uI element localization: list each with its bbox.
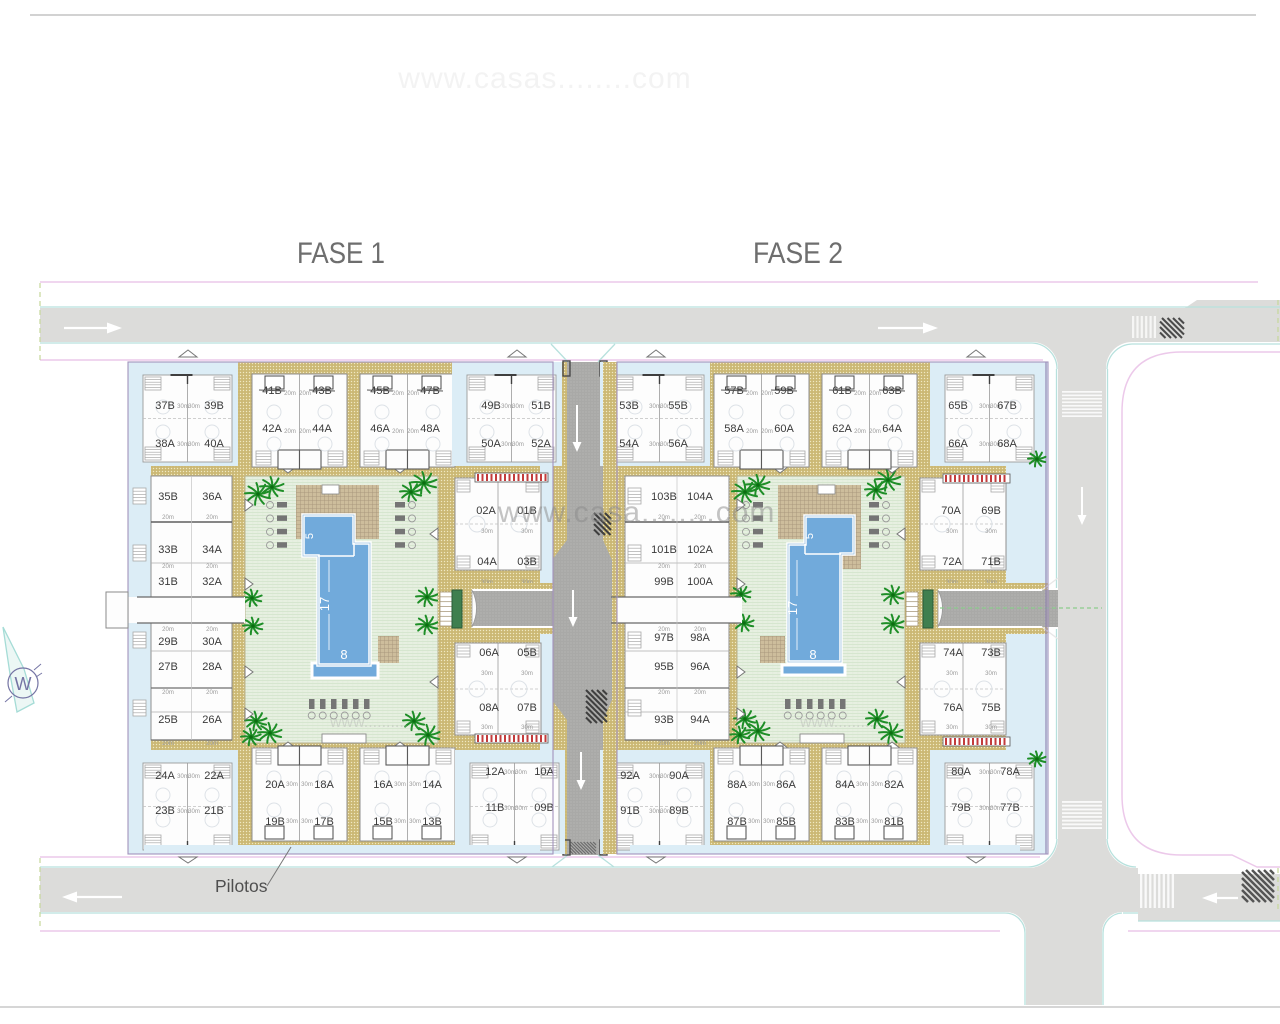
svg-text:77B: 77B [1000,802,1020,814]
svg-text:30m: 30m [649,809,661,815]
svg-text:21B: 21B [204,805,224,817]
svg-text:66A: 66A [948,438,968,450]
svg-text:100A: 100A [687,576,713,588]
svg-text:20m: 20m [299,429,311,435]
svg-text:03B: 03B [517,556,537,568]
svg-text:30m: 30m [512,442,524,448]
svg-text:30m: 30m [985,529,997,535]
svg-text:31B: 31B [158,576,178,588]
svg-text:90A: 90A [669,770,689,782]
svg-text:30m: 30m [409,782,421,788]
svg-text:30m: 30m [990,442,1002,448]
svg-text:8: 8 [809,647,816,662]
svg-text:17: 17 [785,601,800,615]
svg-text:96A: 96A [690,661,710,673]
svg-text:30m: 30m [649,442,661,448]
svg-text:20m: 20m [206,690,218,696]
svg-text:72A: 72A [942,556,962,568]
svg-text:8: 8 [340,647,347,662]
svg-text:20m: 20m [854,429,866,435]
svg-text:20m: 20m [206,515,218,521]
svg-text:13B: 13B [422,816,442,828]
svg-text:20m: 20m [284,429,296,435]
svg-text:05B: 05B [517,647,537,659]
svg-text:www..........: www.......... [799,714,878,731]
svg-text:17: 17 [317,597,332,611]
svg-text:20m: 20m [407,429,419,435]
svg-text:14A: 14A [422,779,442,791]
svg-text:20m: 20m [694,564,706,570]
svg-text:W: W [15,674,32,694]
svg-text:20m: 20m [407,391,419,397]
svg-text:30m: 30m [177,404,189,410]
svg-text:30m: 30m [748,782,760,788]
svg-text:20m: 20m [761,391,773,397]
svg-text:44A: 44A [312,423,332,435]
svg-text:98A: 98A [690,632,710,644]
svg-text:30m: 30m [660,774,672,780]
svg-text:12A: 12A [485,766,505,778]
svg-text:74A: 74A [943,647,963,659]
svg-text:30m: 30m [501,404,513,410]
svg-text:20m: 20m [694,690,706,696]
svg-text:62A: 62A [832,423,852,435]
svg-text:30A: 30A [202,636,222,648]
svg-text:60A: 60A [774,423,794,435]
svg-text:30m: 30m [979,442,991,448]
svg-text:34A: 34A [202,544,222,556]
svg-text:30m: 30m [871,782,883,788]
svg-text:5: 5 [804,533,816,539]
svg-text:32A: 32A [202,576,222,588]
svg-text:30m: 30m [763,782,775,788]
svg-text:30m: 30m [521,671,533,677]
svg-text:69B: 69B [981,505,1001,517]
svg-text:5: 5 [304,533,316,539]
svg-text:83B: 83B [835,816,855,828]
svg-text:30m: 30m [409,819,421,825]
svg-text:30m: 30m [301,782,313,788]
svg-text:75B: 75B [981,702,1001,714]
svg-text:30m: 30m [649,404,661,410]
svg-text:30m: 30m [515,770,527,776]
svg-text:30m: 30m [990,806,1002,812]
svg-text:85B: 85B [776,816,796,828]
svg-text:73B: 73B [981,647,1001,659]
svg-text:79B: 79B [951,802,971,814]
svg-text:25B: 25B [158,714,178,726]
svg-text:www.casa........com: www.casa........com [497,496,775,529]
svg-text:FASE 2: FASE 2 [753,237,843,270]
svg-text:76A: 76A [943,702,963,714]
svg-text:89B: 89B [669,805,689,817]
svg-text:20m: 20m [746,429,758,435]
svg-text:30m: 30m [990,770,1002,776]
svg-text:30m: 30m [979,806,991,812]
svg-text:20m: 20m [869,429,881,435]
svg-text:29B: 29B [158,636,178,648]
svg-text:102A: 102A [687,544,713,556]
svg-text:09B: 09B [534,802,554,814]
svg-text:30m: 30m [177,774,189,780]
svg-text:65B: 65B [948,400,968,412]
svg-text:91B: 91B [620,805,640,817]
svg-text:99B: 99B [654,576,674,588]
svg-text:20m: 20m [299,391,311,397]
svg-text:26A: 26A [202,714,222,726]
svg-text:30m: 30m [188,809,200,815]
svg-text:30m: 30m [660,809,672,815]
svg-text:20A: 20A [265,779,285,791]
svg-text:48A: 48A [420,423,440,435]
svg-text:30m: 30m [985,725,997,731]
svg-text:30m: 30m [301,819,313,825]
svg-text:30m: 30m [177,809,189,815]
svg-text:30m: 30m [660,442,672,448]
svg-text:19B: 19B [265,816,285,828]
svg-text:30m: 30m [871,819,883,825]
svg-text:20m: 20m [694,627,706,633]
svg-text:30m: 30m [188,774,200,780]
svg-text:10A: 10A [534,766,554,778]
svg-text:36A: 36A [202,491,222,503]
svg-text:30m: 30m [481,529,493,535]
svg-text:46A: 46A [370,423,390,435]
svg-text:07B: 07B [517,702,537,714]
svg-text:20m: 20m [658,564,670,570]
svg-text:30m: 30m [979,404,991,410]
svg-text:30m: 30m [286,819,298,825]
svg-text:23B: 23B [155,805,175,817]
svg-text:20m: 20m [206,741,218,747]
svg-text:37B: 37B [155,400,175,412]
svg-text:81B: 81B [884,816,904,828]
svg-text:30m: 30m [985,671,997,677]
svg-text:30m: 30m [763,819,775,825]
svg-text:20m: 20m [854,391,866,397]
svg-text:38A: 38A [155,438,175,450]
svg-text:52A: 52A [531,438,551,450]
svg-text:28A: 28A [202,661,222,673]
svg-text:20m: 20m [746,391,758,397]
svg-text:30m: 30m [856,819,868,825]
svg-text:30m: 30m [979,770,991,776]
svg-text:30m: 30m [512,404,524,410]
svg-text:20m: 20m [869,391,881,397]
svg-text:50A: 50A [481,438,501,450]
svg-text:16A: 16A [373,779,393,791]
svg-text:20m: 20m [162,515,174,521]
svg-text:30m: 30m [504,770,516,776]
svg-text:64A: 64A [882,423,902,435]
svg-text:24A: 24A [155,770,175,782]
svg-text:04A: 04A [477,556,497,568]
svg-text:30m: 30m [521,529,533,535]
svg-text:20m: 20m [206,627,218,633]
svg-text:30m: 30m [504,806,516,812]
svg-text:08A: 08A [479,702,499,714]
svg-text:30m: 30m [515,806,527,812]
svg-text:71B: 71B [981,556,1001,568]
svg-text:80A: 80A [951,766,971,778]
svg-text:33B: 33B [158,544,178,556]
svg-text:20m: 20m [162,690,174,696]
svg-text:02A: 02A [476,505,496,517]
svg-text:92A: 92A [620,770,640,782]
svg-text:84A: 84A [835,779,855,791]
svg-text:42A: 42A [262,423,282,435]
svg-text:86A: 86A [776,779,796,791]
svg-text:Pilotos: Pilotos [215,876,268,896]
svg-text:20m: 20m [658,741,670,747]
svg-text:30m: 30m [748,819,760,825]
svg-text:20m: 20m [392,391,404,397]
svg-text:20m: 20m [761,429,773,435]
svg-text:30m: 30m [946,725,958,731]
svg-text:54A: 54A [619,438,639,450]
svg-text:95B: 95B [654,661,674,673]
svg-text:20m: 20m [658,627,670,633]
svg-text:20m: 20m [162,741,174,747]
svg-text:30m: 30m [286,782,298,788]
svg-text:30m: 30m [481,725,493,731]
svg-text:30m: 30m [946,529,958,535]
svg-text:93B: 93B [654,714,674,726]
svg-text:87B: 87B [727,816,747,828]
svg-text:40A: 40A [204,438,224,450]
svg-text:82A: 82A [884,779,904,791]
svg-text:49B: 49B [481,400,501,412]
svg-text:30m: 30m [660,404,672,410]
svg-text:30m: 30m [649,774,661,780]
svg-text:17B: 17B [314,816,334,828]
svg-text:11B: 11B [486,802,505,814]
svg-text:20m: 20m [162,564,174,570]
svg-text:30m: 30m [481,671,493,677]
svg-text:20m: 20m [284,391,296,397]
svg-text:20m: 20m [392,429,404,435]
svg-text:www.casas........com: www.casas........com [397,62,691,95]
svg-text:FASE 1: FASE 1 [297,237,385,270]
svg-text:30m: 30m [188,442,200,448]
svg-text:27B: 27B [158,661,178,673]
svg-text:30m: 30m [856,782,868,788]
svg-text:30m: 30m [501,442,513,448]
svg-text:94A: 94A [690,714,710,726]
svg-text:30m: 30m [177,442,189,448]
svg-text:20m: 20m [162,627,174,633]
svg-text:www..........: www.......... [329,714,408,731]
svg-text:30m: 30m [394,819,406,825]
svg-text:35B: 35B [158,491,178,503]
svg-text:20m: 20m [658,690,670,696]
svg-text:70A: 70A [941,505,961,517]
svg-text:30m: 30m [946,671,958,677]
svg-text:30m: 30m [394,782,406,788]
svg-text:97B: 97B [654,632,674,644]
svg-text:22A: 22A [204,770,224,782]
svg-text:20m: 20m [206,564,218,570]
svg-text:18A: 18A [314,779,334,791]
svg-text:30m: 30m [990,404,1002,410]
svg-text:58A: 58A [724,423,744,435]
svg-text:30m: 30m [188,404,200,410]
svg-text:06A: 06A [479,647,499,659]
svg-text:53B: 53B [619,400,639,412]
svg-text:101B: 101B [651,544,677,556]
svg-text:15B: 15B [373,816,393,828]
svg-text:20m: 20m [694,741,706,747]
svg-text:39B: 39B [204,400,224,412]
svg-text:78A: 78A [1000,766,1020,778]
svg-text:30m: 30m [521,725,533,731]
svg-text:51B: 51B [531,400,551,412]
svg-text:88A: 88A [727,779,747,791]
